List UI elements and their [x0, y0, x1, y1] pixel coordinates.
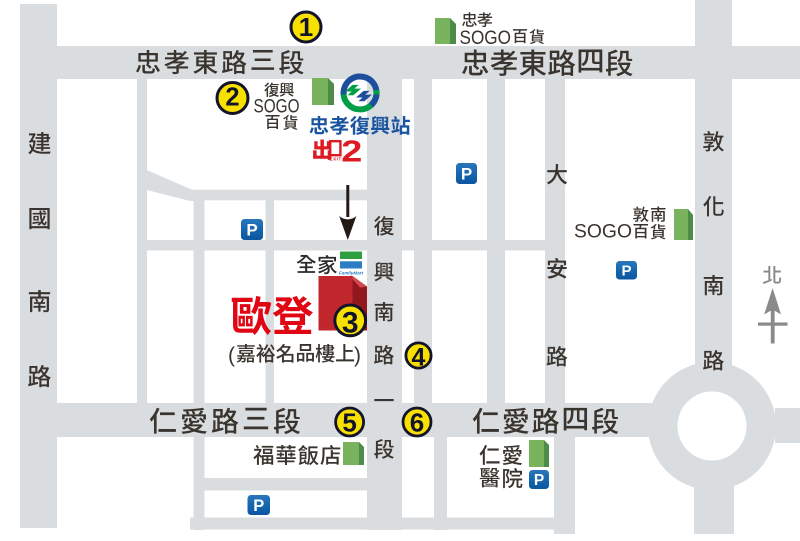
svg-text:P: P — [461, 165, 472, 184]
svg-text:P: P — [253, 497, 264, 515]
svg-text:EXIT: EXIT — [329, 156, 341, 162]
svg-text:SOGO: SOGO — [460, 27, 512, 49]
svg-text:P: P — [246, 221, 257, 240]
svg-text:4: 4 — [412, 344, 426, 372]
svg-text:3: 3 — [342, 307, 359, 340]
svg-text:P: P — [534, 472, 544, 489]
svg-text:FamilyMart: FamilyMart — [339, 271, 364, 276]
svg-text:SOGO: SOGO — [254, 97, 300, 118]
svg-text:): ) — [354, 344, 361, 367]
svg-text:1: 1 — [299, 12, 313, 42]
svg-text:(: ( — [228, 344, 235, 367]
svg-text:2: 2 — [341, 135, 362, 169]
svg-text:2: 2 — [225, 84, 239, 112]
svg-text:SOGO: SOGO — [574, 222, 632, 243]
svg-text:6: 6 — [410, 408, 424, 438]
svg-text:P: P — [621, 263, 631, 280]
svg-text:5: 5 — [342, 408, 356, 438]
